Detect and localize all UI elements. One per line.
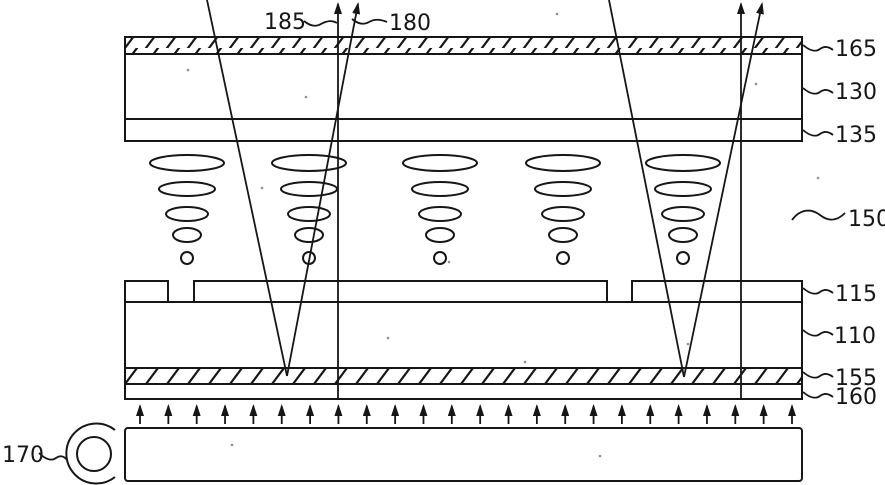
label-160: 160 — [835, 385, 877, 410]
leader-110 — [803, 330, 833, 336]
leader-150 — [792, 211, 845, 220]
electrode-segment — [125, 281, 168, 302]
label-185: 185 — [264, 10, 306, 35]
electrode-segment — [632, 281, 802, 302]
lc-director-ellipse — [166, 207, 208, 221]
lc-director-ellipse — [542, 207, 584, 221]
lc-director-ellipse — [669, 228, 697, 242]
layer-135 — [125, 119, 802, 141]
lc-director-ellipse — [526, 155, 600, 171]
noise-dot — [187, 69, 190, 72]
noise-dot — [556, 13, 559, 16]
label-135: 135 — [835, 123, 877, 148]
lc-director-ellipse — [272, 155, 346, 171]
lamp-tube-circle — [77, 437, 111, 471]
leader-185 — [304, 21, 337, 26]
layer-160 — [125, 384, 802, 399]
leader-135 — [803, 130, 833, 136]
lc-director-ellipse — [150, 155, 224, 171]
lc-director-ellipse — [426, 228, 454, 242]
layer-110 — [125, 302, 802, 368]
lc-director-ellipse — [159, 182, 215, 196]
noise-dot — [599, 455, 602, 458]
noise-dot — [817, 177, 820, 180]
backlight-arrow-row — [140, 406, 792, 424]
lc-director-dot — [434, 252, 446, 264]
lamp-reflector-arc — [66, 423, 115, 483]
label-170: 170 — [2, 443, 44, 468]
leader-180 — [352, 19, 387, 24]
lamp-icon — [66, 423, 115, 483]
layer-155-hatched — [125, 368, 802, 384]
noise-dot — [387, 337, 390, 340]
label-130: 130 — [835, 80, 877, 105]
lc-director-group — [150, 155, 224, 264]
lc-director-group — [646, 155, 720, 264]
leader-160 — [803, 392, 833, 398]
lc-director-group — [526, 155, 600, 264]
lc-director-ellipse — [173, 228, 201, 242]
lc-director-ellipse — [281, 182, 337, 196]
leader-115 — [803, 288, 833, 294]
lc-director-ellipse — [288, 207, 330, 221]
lc-director-dot — [181, 252, 193, 264]
electrode-segment — [194, 281, 607, 302]
label-180: 180 — [389, 11, 431, 36]
layer-165-hatched — [125, 37, 802, 54]
lc-director-ellipse — [295, 228, 323, 242]
lc-director-layer — [150, 155, 720, 264]
label-110: 110 — [834, 324, 876, 349]
lc-director-ellipse — [646, 155, 720, 171]
noise-dot — [231, 444, 234, 447]
lc-director-ellipse — [412, 182, 468, 196]
patent-cross-section-figure: 185 180 165 130 135 150 115 110 155 160 … — [0, 0, 885, 485]
lc-director-dot — [677, 252, 689, 264]
noise-dot — [755, 83, 758, 86]
label-165: 165 — [835, 37, 877, 62]
noise-dot — [448, 261, 451, 264]
lc-director-group — [272, 155, 346, 264]
lc-director-ellipse — [549, 228, 577, 242]
lc-director-ellipse — [655, 182, 711, 196]
leader-165 — [803, 45, 833, 51]
noise-dot — [305, 96, 308, 99]
label-150: 150 — [848, 207, 885, 232]
noise-dot — [524, 361, 527, 364]
lc-director-ellipse — [403, 155, 477, 171]
leader-155 — [803, 372, 833, 378]
layer-130 — [125, 54, 802, 119]
noise-dot — [687, 343, 690, 346]
noise-dot — [261, 187, 264, 190]
lc-director-ellipse — [535, 182, 591, 196]
patent-figure-canvas: 185 180 165 130 135 150 115 110 155 160 … — [0, 0, 885, 485]
lc-director-ellipse — [419, 207, 461, 221]
lc-director-dot — [557, 252, 569, 264]
lc-director-ellipse — [662, 207, 704, 221]
lc-director-group — [403, 155, 477, 264]
leader-130 — [803, 88, 833, 94]
backlight-panel — [125, 428, 802, 481]
label-115: 115 — [835, 282, 877, 307]
